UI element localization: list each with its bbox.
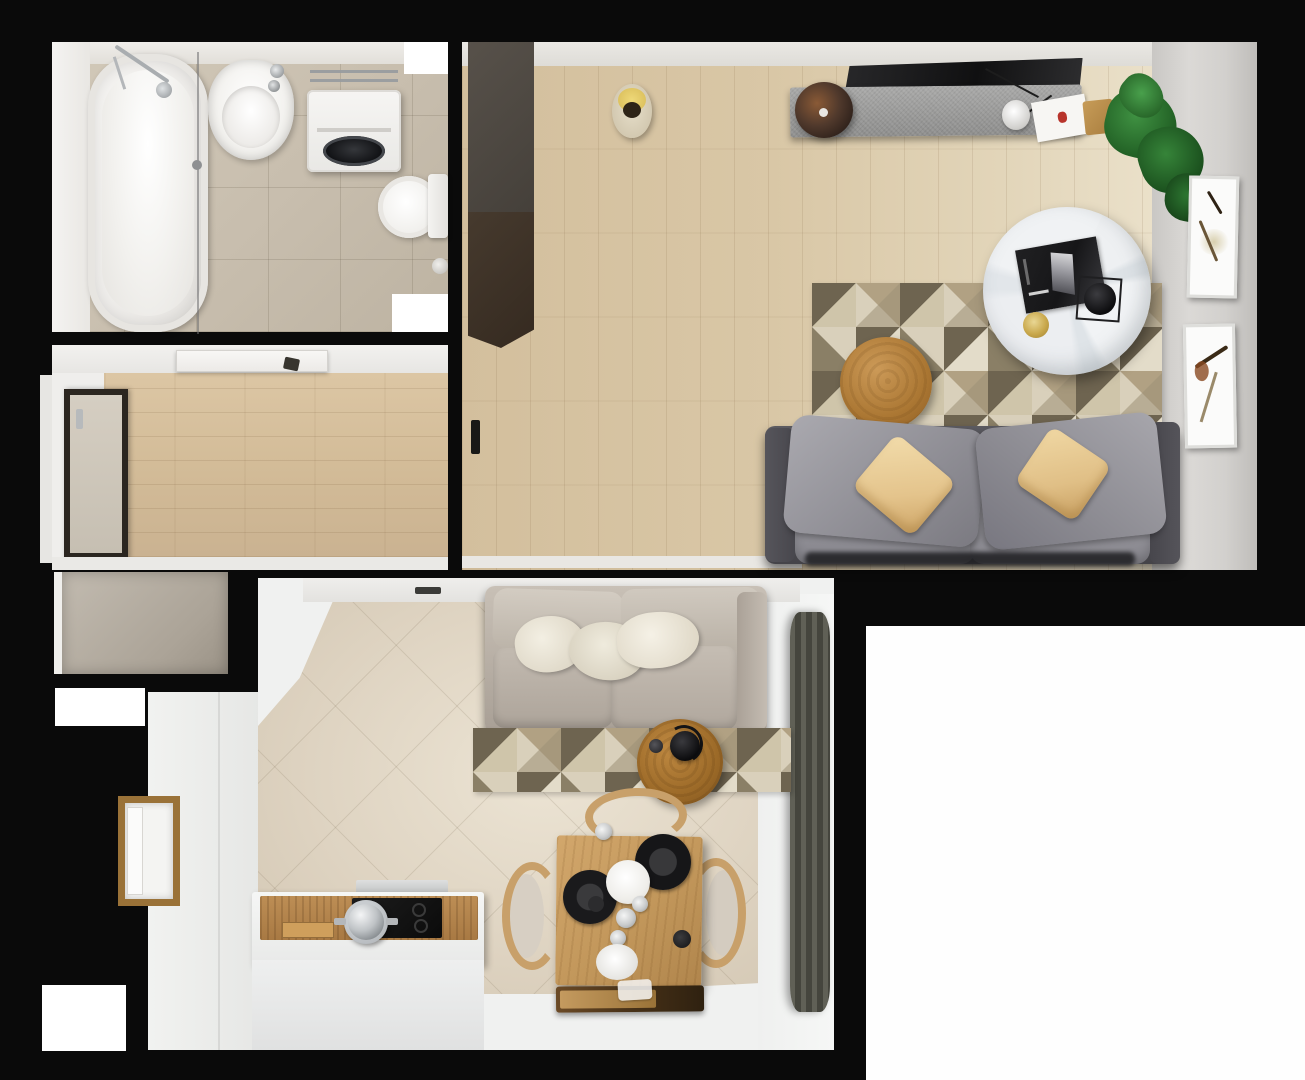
white-dish xyxy=(596,944,638,980)
black-kettle xyxy=(670,731,700,761)
faucet-handle xyxy=(268,80,280,92)
open-entry-door xyxy=(176,350,328,372)
red-accent xyxy=(1057,111,1068,123)
storage-basket xyxy=(612,84,652,138)
washbasin xyxy=(208,60,294,160)
art-wash xyxy=(1195,361,1209,381)
wardrobe-lower-section xyxy=(468,212,534,348)
copper-dome-lamp xyxy=(795,82,853,138)
gray-sofa xyxy=(765,420,1180,570)
toilet-brush-holder xyxy=(432,258,448,274)
drinking-glass xyxy=(595,823,612,840)
faucet-tap xyxy=(270,64,284,78)
black-bowl xyxy=(1084,283,1116,315)
oak-side-table xyxy=(840,337,932,429)
washer-drum xyxy=(323,136,385,166)
door-leaf xyxy=(127,807,143,895)
beige-sofa xyxy=(485,586,767,734)
hallway-left-wall-edge xyxy=(40,375,52,563)
small-dish xyxy=(588,896,604,912)
drinking-glass xyxy=(616,908,636,928)
balcony-door-handle xyxy=(76,409,83,429)
small-dish xyxy=(673,930,691,948)
shower-head xyxy=(156,82,172,98)
bathroom xyxy=(52,42,448,332)
washbasin-bowl xyxy=(222,86,280,148)
bathtub xyxy=(88,54,208,332)
shower-glass-screen xyxy=(197,52,199,334)
cabinet-seam xyxy=(218,692,220,1050)
art-brushstroke xyxy=(1207,191,1223,215)
living-room xyxy=(462,42,1257,570)
geometric-rug xyxy=(473,728,791,792)
counter-cabinet-front xyxy=(252,960,484,1050)
storage-closet xyxy=(62,572,228,674)
bathtub-basin xyxy=(102,70,194,316)
burner-ring xyxy=(412,903,426,917)
magazine-spine-text xyxy=(1023,259,1030,285)
shower-screen-knob xyxy=(192,160,202,170)
drinking-glass xyxy=(632,896,648,912)
pot-handle xyxy=(334,918,346,925)
basket-opening xyxy=(623,102,641,118)
steel-pot xyxy=(344,900,388,944)
magazine-cover-art xyxy=(1046,249,1080,299)
wall-art-frame xyxy=(1183,324,1237,449)
bentwood-chair xyxy=(502,862,562,970)
bathroom-left-wall xyxy=(52,42,90,332)
balcony-door xyxy=(64,389,128,559)
window-handle xyxy=(415,587,441,594)
toilet-tank xyxy=(428,174,448,238)
wardrobe-upper-section xyxy=(468,42,534,212)
burner-ring xyxy=(414,919,428,933)
glass-item xyxy=(617,979,652,1001)
living-bottom-wall-strip xyxy=(462,556,802,568)
washer-plumbing xyxy=(310,66,398,88)
sofa-shadow xyxy=(805,552,1135,566)
wood-trimmed-doorway xyxy=(118,796,180,906)
gold-candle xyxy=(1023,312,1049,338)
white-desk-lamp xyxy=(1002,100,1030,130)
window-gap xyxy=(55,688,145,726)
apartment-floorplan-render xyxy=(0,0,1305,1080)
empty-white-area xyxy=(866,626,1305,1080)
wall-niche xyxy=(404,42,448,74)
sofa-armrest-right xyxy=(737,592,767,730)
washer-panel xyxy=(317,128,391,132)
wardrobe xyxy=(468,42,534,348)
hallway-wood-floor xyxy=(104,373,448,557)
washing-machine xyxy=(307,90,401,172)
hallway-bottom-wall xyxy=(52,557,448,570)
pot-handle xyxy=(386,918,398,925)
hallway xyxy=(52,345,448,570)
magazine-title-text xyxy=(1029,289,1049,295)
olive-curtain xyxy=(790,612,830,1012)
cup xyxy=(649,739,663,753)
counter-cutting-board xyxy=(282,922,334,938)
door-handle-left-wall xyxy=(471,420,480,454)
wooden-bench-tray xyxy=(556,985,704,1012)
rug-pattern xyxy=(473,728,791,792)
wall-art-frame xyxy=(1187,175,1240,298)
wall-niche xyxy=(392,294,448,332)
lamp-bulb xyxy=(819,108,828,117)
window-gap xyxy=(42,985,126,1051)
